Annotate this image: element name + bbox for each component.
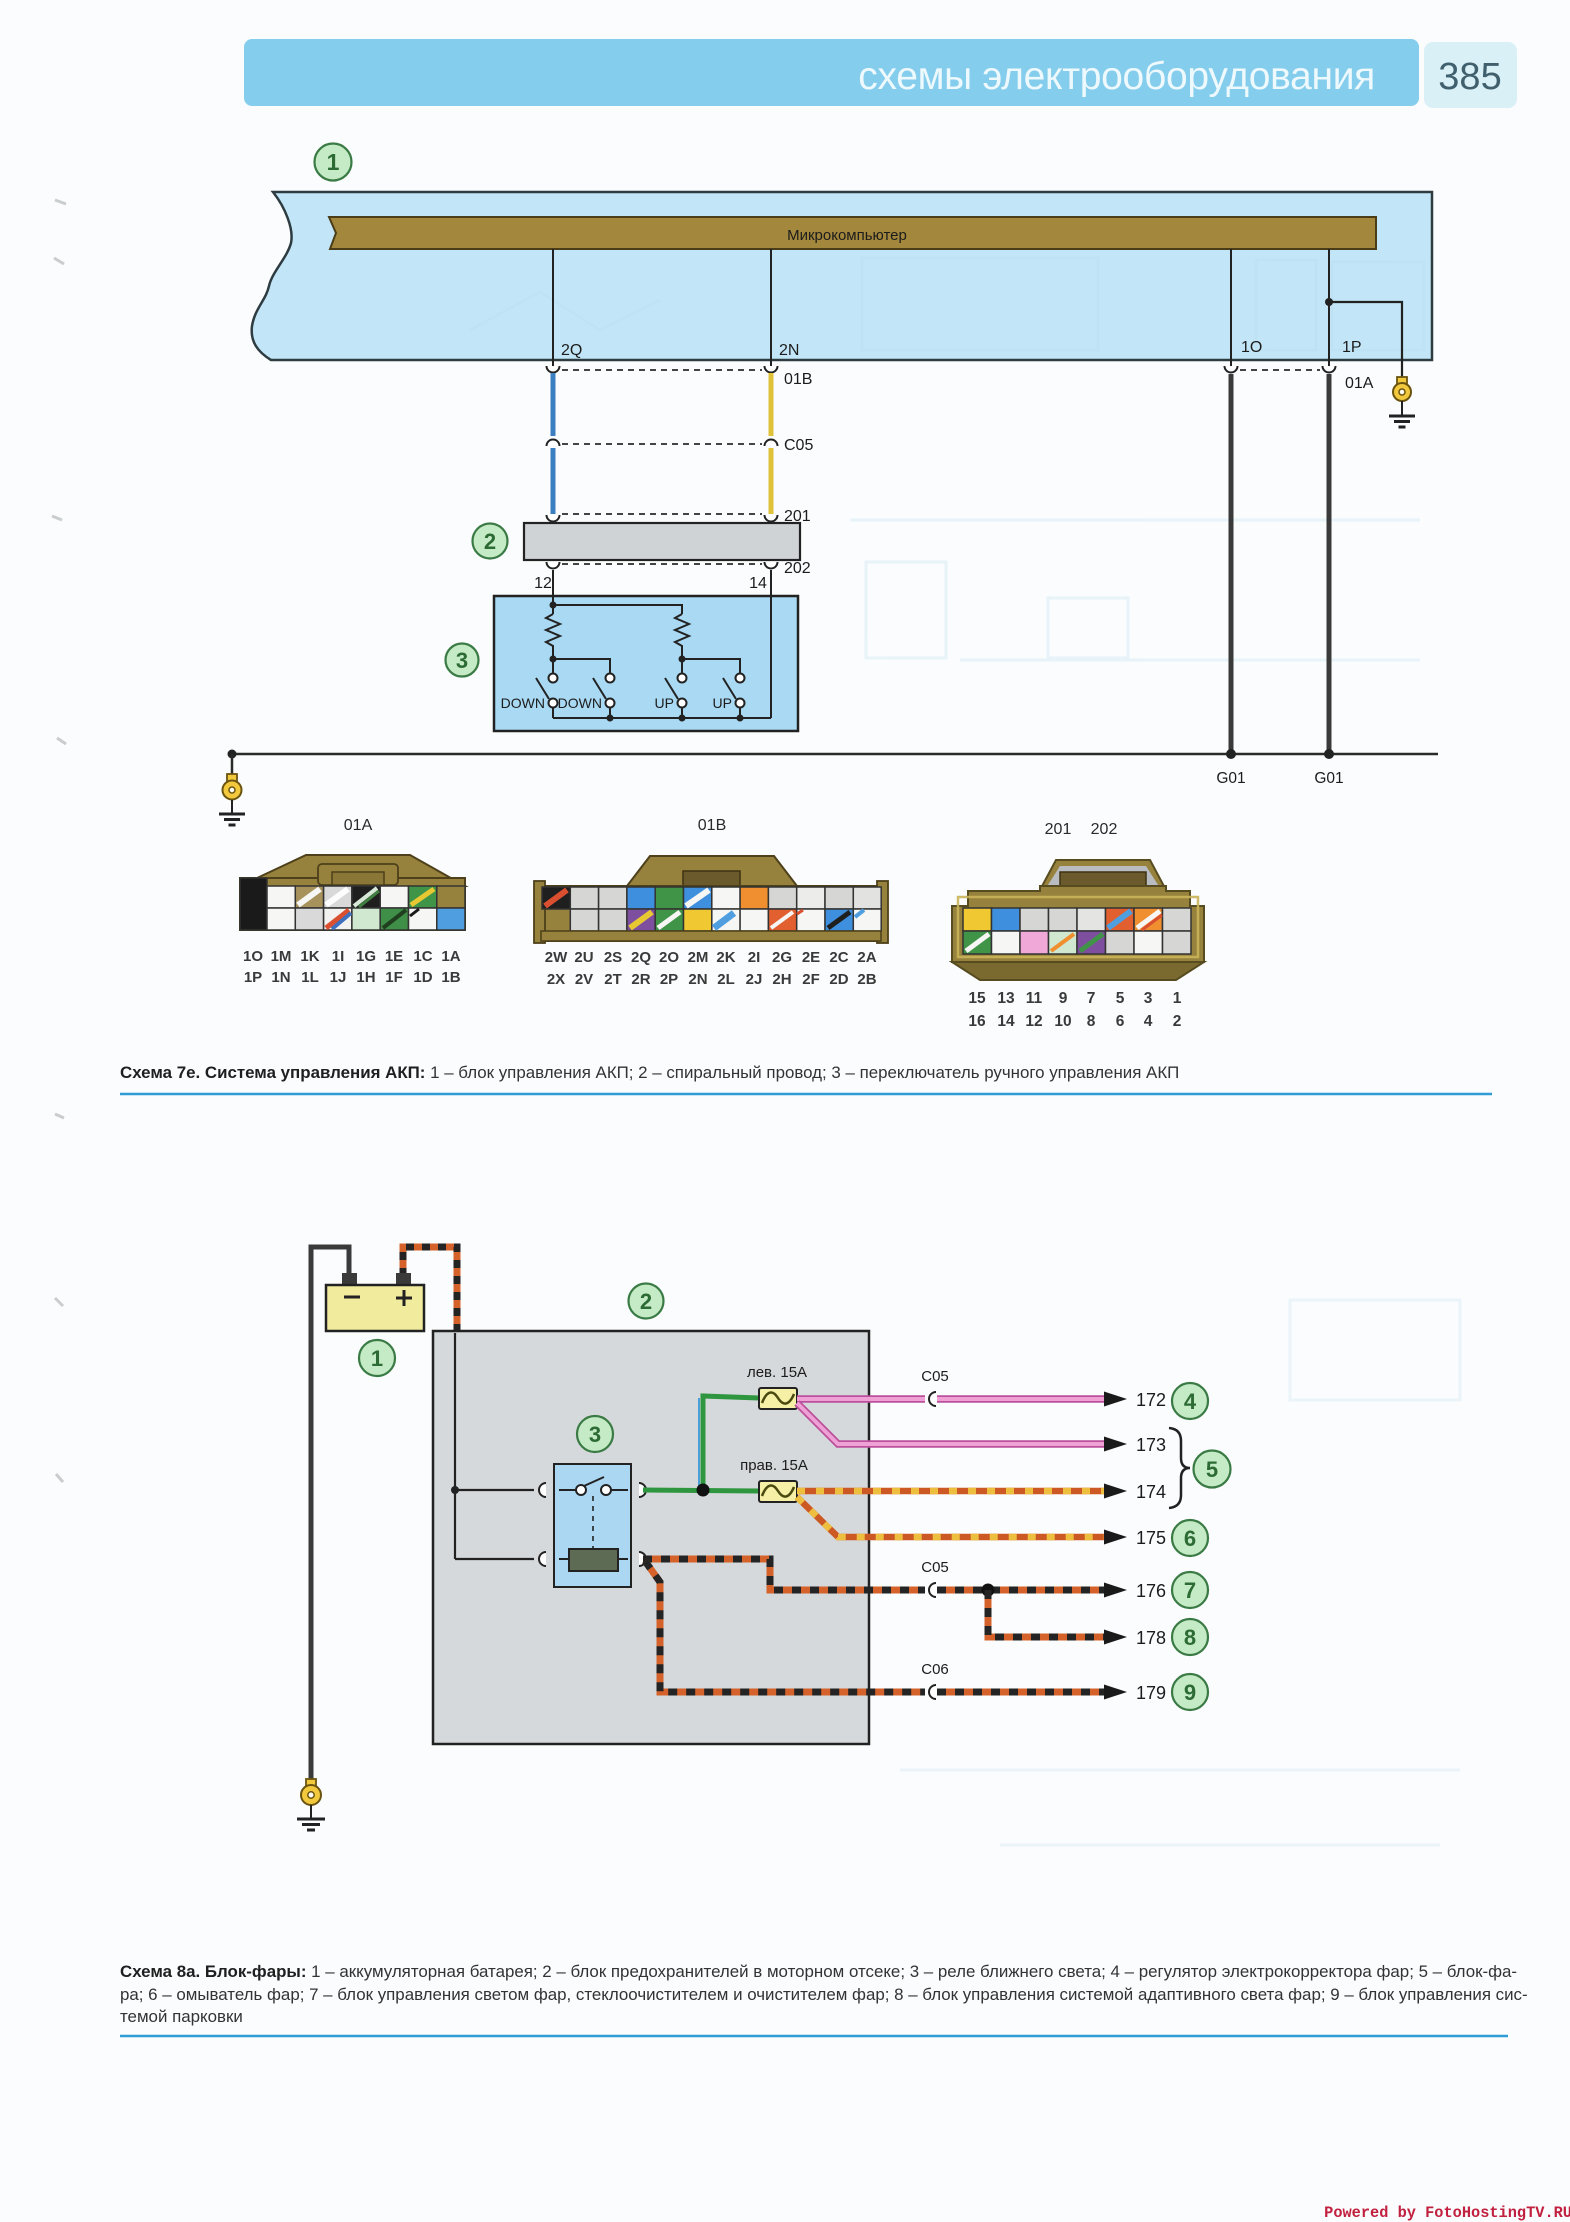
svg-text:172: 172 [1136,1390,1166,1410]
svg-text:1E: 1E [385,948,403,965]
svg-text:Powered by FotoHostingTV.RU: Powered by FotoHostingTV.RU [1324,2204,1570,2222]
svg-text:13: 13 [997,990,1015,1007]
svg-text:1: 1 [327,149,340,175]
svg-text:2B: 2B [857,971,876,988]
svg-text:201: 201 [1045,821,1072,838]
svg-text:16: 16 [968,1013,986,1030]
svg-text:14: 14 [997,1013,1015,1030]
svg-text:темой парковки: темой парковки [120,2007,243,2026]
svg-text:1K: 1K [300,948,319,965]
svg-text:10: 10 [1054,1013,1071,1030]
svg-text:2R: 2R [631,971,650,988]
svg-text:2: 2 [484,529,496,554]
svg-text:2M: 2M [688,949,709,966]
svg-text:1N: 1N [271,969,290,986]
svg-text:178: 178 [1136,1628,1166,1648]
svg-text:176: 176 [1136,1581,1166,1601]
svg-text:14: 14 [749,575,767,592]
svg-text:2W: 2W [545,949,568,966]
svg-text:8: 8 [1087,1013,1096,1030]
svg-text:2X: 2X [547,971,565,988]
svg-text:4: 4 [1144,1013,1153,1030]
svg-text:6: 6 [1184,1526,1196,1551]
svg-text:2A: 2A [857,949,876,966]
svg-text:3: 3 [1144,990,1153,1007]
svg-text:1B: 1B [441,969,460,986]
svg-text:1D: 1D [413,969,432,986]
svg-text:G01: G01 [1314,770,1343,787]
svg-text:7: 7 [1184,1578,1196,1603]
svg-text:2P: 2P [660,971,678,988]
svg-text:6: 6 [1116,1013,1125,1030]
svg-text:Схема 8а. Блок-фары: 1 – аккум: Схема 8а. Блок-фары: 1 – аккумуляторная … [120,1962,1517,1981]
svg-text:2S: 2S [604,949,622,966]
svg-text:179: 179 [1136,1683,1166,1703]
svg-text:01A: 01A [344,817,373,834]
svg-text:9: 9 [1059,990,1068,1007]
svg-text:2K: 2K [716,949,735,966]
svg-text:C05: C05 [921,1368,949,1385]
svg-text:2: 2 [640,1289,652,1314]
svg-text:15: 15 [968,990,986,1007]
svg-text:173: 173 [1136,1435,1166,1455]
svg-text:2F: 2F [802,971,820,988]
svg-text:2I: 2I [748,949,761,966]
svg-text:схемы электрооборудования: схемы электрооборудования [858,55,1375,98]
svg-text:12: 12 [1025,1013,1042,1030]
svg-text:1C: 1C [413,948,432,965]
svg-text:1: 1 [1173,990,1182,1007]
svg-text:1O: 1O [243,948,263,965]
svg-text:1A: 1A [441,948,460,965]
svg-text:2O: 2O [659,949,679,966]
svg-text:2V: 2V [575,971,593,988]
svg-text:7: 7 [1087,990,1096,1007]
svg-text:2N: 2N [779,342,799,359]
svg-text:1: 1 [371,1346,383,1371]
svg-text:1P: 1P [244,969,262,986]
svg-text:UP: UP [655,695,674,711]
svg-text:2N: 2N [688,971,707,988]
svg-text:385: 385 [1438,56,1501,98]
svg-text:1L: 1L [301,969,319,986]
svg-text:DOWN: DOWN [501,695,545,711]
svg-text:174: 174 [1136,1482,1166,1502]
svg-text:Схема 7е. Система управления А: Схема 7е. Система управления АКП: 1 – бл… [120,1063,1179,1082]
svg-text:3: 3 [456,648,468,673]
svg-text:UP: UP [713,695,732,711]
svg-text:3: 3 [589,1422,601,1447]
svg-text:1I: 1I [332,948,345,965]
svg-text:Микрокомпьютер: Микрокомпьютер [787,227,907,244]
svg-text:2D: 2D [829,971,848,988]
svg-text:2H: 2H [772,971,791,988]
svg-text:1G: 1G [356,948,376,965]
svg-text:9: 9 [1184,1680,1196,1705]
svg-text:5: 5 [1206,1457,1218,1482]
svg-text:8: 8 [1184,1625,1196,1650]
svg-text:2J: 2J [746,971,763,988]
svg-text:2Q: 2Q [631,949,651,966]
svg-text:12: 12 [534,575,552,592]
svg-text:2Q: 2Q [561,342,582,359]
svg-text:прав. 15А: прав. 15А [740,1457,808,1474]
svg-text:2T: 2T [604,971,622,988]
svg-text:01A: 01A [1345,375,1374,392]
svg-text:01B: 01B [784,371,812,388]
svg-text:01B: 01B [698,817,726,834]
svg-text:2U: 2U [574,949,593,966]
svg-text:1F: 1F [385,969,403,986]
svg-text:1M: 1M [271,948,292,965]
svg-text:4: 4 [1184,1389,1197,1414]
svg-text:5: 5 [1116,990,1125,1007]
svg-text:2E: 2E [802,949,820,966]
svg-text:1O: 1O [1241,339,1262,356]
svg-text:1J: 1J [330,969,347,986]
svg-text:DOWN: DOWN [558,695,602,711]
svg-text:175: 175 [1136,1528,1166,1548]
svg-text:1P: 1P [1342,339,1362,356]
svg-text:C06: C06 [921,1661,949,1678]
svg-text:2L: 2L [717,971,735,988]
svg-text:2C: 2C [829,949,848,966]
svg-text:202: 202 [784,560,811,577]
svg-text:2: 2 [1173,1013,1182,1030]
svg-text:G01: G01 [1216,770,1245,787]
svg-text:лев. 15А: лев. 15А [747,1364,807,1381]
svg-text:1H: 1H [356,969,375,986]
svg-text:C05: C05 [921,1559,949,1576]
svg-text:C05: C05 [784,437,813,454]
svg-text:ра; 6 – омыватель фар; 7 – бло: ра; 6 – омыватель фар; 7 – блок управлен… [120,1985,1528,2004]
svg-text:202: 202 [1091,821,1118,838]
svg-text:11: 11 [1026,990,1043,1007]
svg-text:2G: 2G [772,949,792,966]
